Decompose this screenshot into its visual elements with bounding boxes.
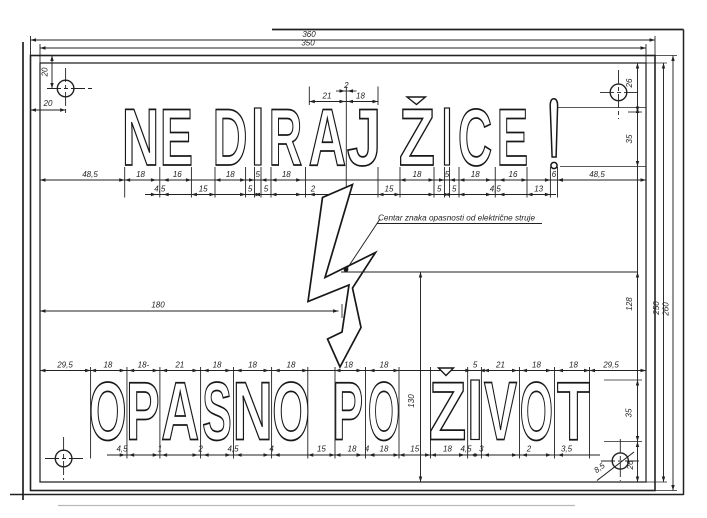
svg-text:4,5: 4,5 <box>154 185 166 194</box>
svg-text:A: A <box>309 93 347 183</box>
svg-text:35: 35 <box>625 134 634 143</box>
svg-text:N: N <box>233 365 273 458</box>
svg-text:20: 20 <box>41 67 50 77</box>
svg-text:E: E <box>497 93 528 183</box>
svg-text:5: 5 <box>264 185 269 194</box>
svg-text:5: 5 <box>256 170 261 179</box>
svg-text:350: 350 <box>301 39 315 48</box>
svg-text:E: E <box>160 93 193 183</box>
svg-text:V: V <box>484 365 517 458</box>
svg-text:5: 5 <box>473 361 478 370</box>
svg-text:128: 128 <box>625 297 634 311</box>
svg-text:26: 26 <box>625 78 634 88</box>
svg-text:35: 35 <box>625 408 634 417</box>
svg-text:48,5: 48,5 <box>589 170 605 179</box>
svg-text:Centar znaka opasnosti od elek: Centar znaka opasnosti od električne str… <box>378 214 535 223</box>
svg-text:5: 5 <box>437 185 442 194</box>
svg-text:29,5: 29,5 <box>602 361 619 370</box>
svg-text:R: R <box>269 93 302 183</box>
svg-text:4,5: 4,5 <box>490 185 502 194</box>
svg-text:O: O <box>89 365 126 458</box>
svg-text:Z: Z <box>399 93 435 183</box>
svg-text:2: 2 <box>310 185 316 194</box>
svg-text:250: 250 <box>652 301 661 316</box>
svg-text:5: 5 <box>248 185 253 194</box>
svg-text:O: O <box>368 365 400 458</box>
svg-text:13: 13 <box>534 185 543 194</box>
svg-text:P: P <box>333 365 363 458</box>
svg-text:D: D <box>213 93 248 183</box>
svg-text:J: J <box>347 93 382 183</box>
svg-text:29,5: 29,5 <box>56 361 73 370</box>
svg-text:15: 15 <box>199 185 208 194</box>
svg-text:P: P <box>126 365 160 458</box>
svg-text:S: S <box>202 365 232 458</box>
svg-text:15: 15 <box>317 445 326 454</box>
svg-text:N: N <box>122 93 159 183</box>
svg-text:6: 6 <box>552 170 557 179</box>
svg-text:Z: Z <box>429 365 466 458</box>
svg-text:180: 180 <box>151 301 165 310</box>
svg-text:C: C <box>458 93 492 183</box>
svg-text:2: 2 <box>343 81 349 90</box>
svg-text:O: O <box>272 365 310 458</box>
svg-text:5: 5 <box>445 170 450 179</box>
svg-text:20: 20 <box>43 99 53 108</box>
svg-text:A: A <box>161 365 199 458</box>
svg-text:15: 15 <box>410 445 419 454</box>
svg-text:T: T <box>557 365 590 458</box>
svg-text:48,5: 48,5 <box>82 170 98 179</box>
svg-text:260: 260 <box>662 302 671 317</box>
svg-text:5: 5 <box>452 185 457 194</box>
svg-text:O: O <box>520 365 553 458</box>
svg-text:15: 15 <box>385 185 394 194</box>
svg-text:130: 130 <box>407 394 416 408</box>
